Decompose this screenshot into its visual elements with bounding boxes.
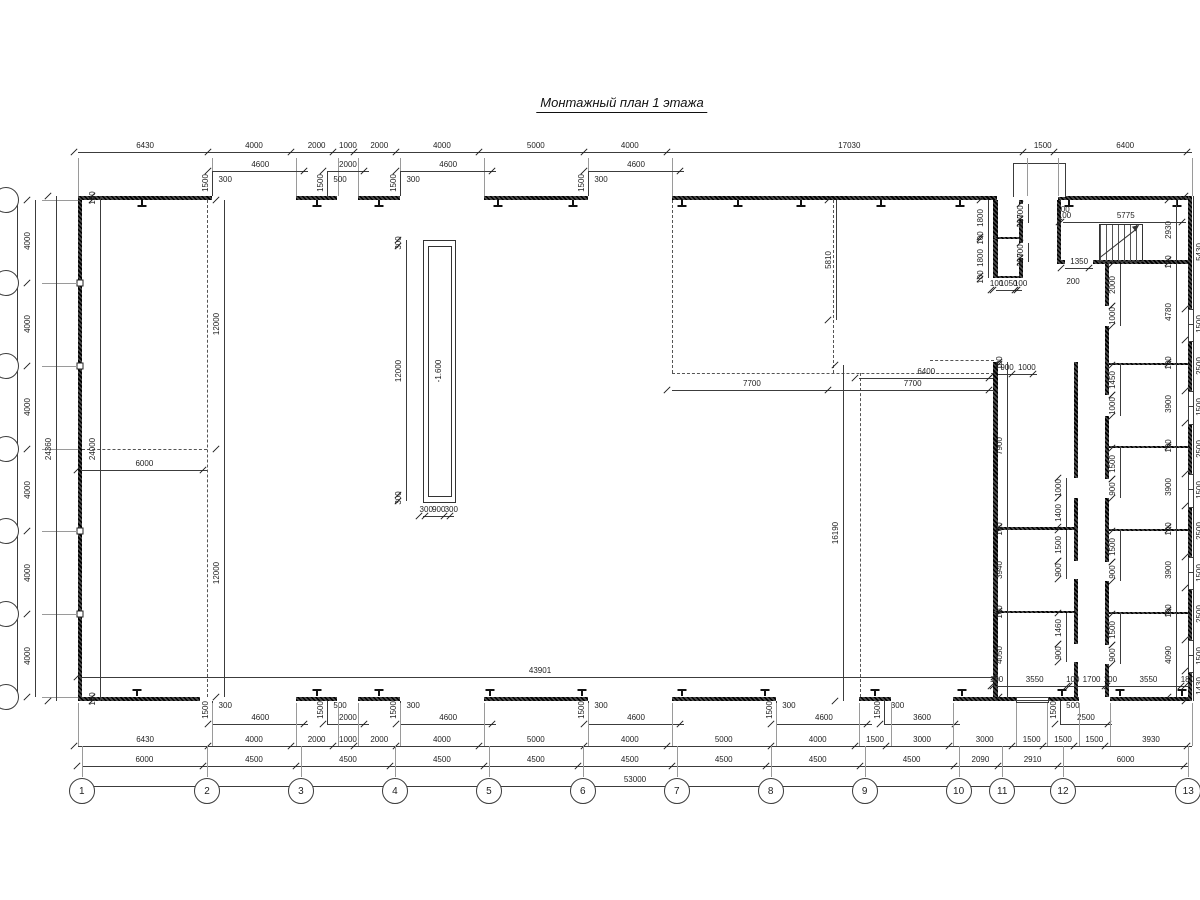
column-symbol <box>375 689 384 691</box>
dimension-label: 300 <box>594 702 607 710</box>
dimension-label: 100 <box>1014 280 1027 288</box>
dimension-label: 200 <box>1017 214 1025 227</box>
dimension-tick <box>876 720 883 727</box>
drawing-element <box>1028 204 1029 223</box>
drawing-element <box>588 724 684 725</box>
dimension-label: 2000 <box>339 714 357 722</box>
drawing-element <box>1120 395 1121 416</box>
drawing-element <box>1110 703 1111 746</box>
drawing-element <box>1192 703 1193 746</box>
drawing-element <box>400 703 401 746</box>
drawing-element <box>358 158 359 196</box>
dimension-label: 4000 <box>24 647 32 665</box>
dimension-label: 4500 <box>903 756 921 764</box>
dimension-tick <box>831 697 838 704</box>
drawing-element <box>988 200 989 279</box>
wall-segment <box>484 697 588 701</box>
dimension-label: 100 <box>1104 676 1117 684</box>
wall-segment <box>1188 340 1192 392</box>
floor-plan-drawing: Монтажный план 1 этажа -1.60064304000200… <box>0 0 1200 900</box>
dimension-label: 12000 <box>213 562 221 584</box>
drawing-element <box>884 701 885 724</box>
drawing-element <box>224 200 225 698</box>
dimension-label: 5775 <box>1117 212 1135 220</box>
dimension-label: 4000 <box>433 142 451 150</box>
drawing-element <box>836 200 837 320</box>
column-symbol <box>375 205 384 207</box>
drawing-element <box>358 703 359 746</box>
drawing-element <box>672 158 673 196</box>
dimension-tick <box>212 694 219 701</box>
drawing-element <box>1120 448 1121 479</box>
drawing-element <box>395 746 396 777</box>
dimension-label: 300 <box>219 702 232 710</box>
drawing-element <box>1120 562 1121 581</box>
dimension-tick <box>1181 336 1188 343</box>
dimension-label: 4780 <box>1165 303 1173 321</box>
dimension-label: 2910 <box>1024 756 1042 764</box>
dimension-label: 4500 <box>433 756 451 764</box>
drawing-element <box>296 703 297 746</box>
wall-segment <box>1074 579 1078 643</box>
column-symbol <box>1116 689 1125 691</box>
dimension-label: 300 <box>445 506 458 514</box>
dashed-line <box>207 200 208 697</box>
dimension-label: 300 <box>395 491 403 504</box>
dimension-label: 300 <box>594 176 607 184</box>
dimension-label: 2000 <box>1109 276 1117 294</box>
dimension-label: 1500 <box>1196 647 1200 665</box>
dimension-label: 180 <box>89 191 97 204</box>
dimension-tick <box>392 720 399 727</box>
dimension-label: 4500 <box>715 756 733 764</box>
drawing-element <box>400 724 496 725</box>
dimension-label: 1500 <box>1109 538 1117 556</box>
dimension-label: 6000 <box>135 460 153 468</box>
drawing-element <box>588 171 589 196</box>
dimension-label: 4600 <box>439 161 457 169</box>
dimension-label: 4000 <box>245 142 263 150</box>
dimension-label: 200 <box>1066 278 1079 286</box>
drawing-element <box>400 171 401 196</box>
dimension-label: 900 <box>1055 563 1063 576</box>
dimension-tick <box>23 445 30 452</box>
wall-segment <box>1188 423 1192 475</box>
dimension-tick <box>768 720 775 727</box>
grid-axis-bubble: 1 <box>69 778 95 804</box>
dimension-tick <box>23 611 30 618</box>
column-symbol <box>956 205 965 207</box>
drawing-element <box>1066 644 1067 663</box>
dimension-label: 1500 <box>1109 621 1117 639</box>
dimension-label: 5810 <box>825 251 833 269</box>
dimension-label: 4000 <box>24 315 32 333</box>
dimension-tick <box>44 192 51 199</box>
drawing-element <box>1047 703 1048 746</box>
dimension-label: 4600 <box>815 714 833 722</box>
dimension-label: 2500 <box>1077 714 1095 722</box>
wall-segment <box>1074 362 1078 478</box>
dimension-label: 1430 <box>1196 677 1200 695</box>
dimension-label: 3600 <box>913 714 931 722</box>
dimension-label: 7700 <box>904 380 922 388</box>
column-symbol <box>761 689 770 691</box>
dimension-label: 2500 <box>1196 357 1200 375</box>
drawing-element <box>1066 561 1067 580</box>
dimension-label: 4000 <box>24 232 32 250</box>
dimension-label: 4050 <box>996 646 1004 664</box>
dimension-label: 100 <box>1056 206 1069 214</box>
dimension-tick <box>580 720 587 727</box>
dimension-label: 1700 <box>1083 676 1101 684</box>
drawing-element <box>1066 530 1067 561</box>
dimension-label: 1460 <box>1055 620 1063 638</box>
column-symbol <box>677 689 686 691</box>
wall-segment <box>1110 697 1192 701</box>
drawing-element <box>82 786 1188 787</box>
dimension-label: 12000 <box>213 313 221 335</box>
dimension-label: 6400 <box>917 368 935 376</box>
drawing-element <box>82 470 207 471</box>
dimension-label: 4500 <box>339 756 357 764</box>
dimension-tick <box>1181 502 1188 509</box>
column-symbol <box>1173 205 1182 207</box>
drawing-element <box>1188 746 1189 777</box>
drawing-element <box>583 746 584 777</box>
dimension-label: 500 <box>333 702 346 710</box>
dimension-label: 1500 <box>866 736 884 744</box>
dimension-label: 900 <box>1109 648 1117 661</box>
dimension-label: 100 <box>996 606 1004 619</box>
dimension-label: 100 <box>977 231 985 244</box>
dimension-label: 12000 <box>395 359 403 381</box>
dashed-line <box>833 200 834 373</box>
dimension-label: 100 <box>1066 676 1079 684</box>
drawing-element <box>42 697 78 698</box>
dimension-label: 5000 <box>527 736 545 744</box>
pit-elevation-label: -1.600 <box>435 359 443 382</box>
dimension-tick <box>74 762 81 769</box>
drawing-element <box>891 703 892 746</box>
dimension-label: 900 <box>1109 482 1117 495</box>
drawing-element <box>884 724 959 725</box>
dimension-label: 2500 <box>1196 605 1200 623</box>
dimension-label: 100 <box>1165 522 1173 535</box>
dimension-label: 4000 <box>621 142 639 150</box>
dimension-tick <box>204 720 211 727</box>
grid-axis-bubble: 8 <box>758 778 784 804</box>
dimension-label: 17030 <box>838 142 860 150</box>
drawing-element <box>327 171 328 196</box>
dimension-label: 100 <box>1165 356 1173 369</box>
dimension-label: 500 <box>333 176 346 184</box>
dimension-label: 2500 <box>1196 440 1200 458</box>
wall-segment <box>953 697 1016 701</box>
dimension-tick <box>23 279 30 286</box>
dimension-label: 4000 <box>621 736 639 744</box>
dimension-label: 2000 <box>370 736 388 744</box>
dimension-label: 1500 <box>1054 736 1072 744</box>
column-symbol <box>797 205 806 207</box>
dimension-label: 6000 <box>1117 756 1135 764</box>
dimension-label: 300 <box>782 702 795 710</box>
dimension-label: 3900 <box>1165 561 1173 579</box>
drawing-element <box>1120 479 1121 498</box>
drawing-element <box>484 703 485 746</box>
drawing-element <box>959 746 960 777</box>
drawing-element <box>400 171 496 172</box>
dimension-label: 4000 <box>433 736 451 744</box>
drawing-element <box>78 703 79 746</box>
dimension-tick <box>23 196 30 203</box>
dimension-label: 1800 <box>977 249 985 267</box>
drawing-element <box>1007 362 1008 698</box>
column-symbol <box>312 205 321 207</box>
dimension-label: 3900 <box>1165 395 1173 413</box>
dimension-label: 1500 <box>317 701 325 719</box>
dashed-line <box>672 373 994 374</box>
drawing-element <box>843 365 844 701</box>
dimension-label: 4500 <box>245 756 263 764</box>
dimension-label: 2090 <box>972 756 990 764</box>
dimension-label: 1500 <box>1196 315 1200 333</box>
dimension-label: 7700 <box>743 380 761 388</box>
dimension-tick <box>212 445 219 452</box>
dimension-tick <box>212 196 219 203</box>
dimension-label: 1000 <box>1018 364 1036 372</box>
dimension-tick <box>1181 419 1188 426</box>
dashed-line <box>930 360 994 361</box>
dimension-label: 1000 <box>339 736 357 744</box>
drawing-element <box>489 746 490 777</box>
dimension-label: 53000 <box>624 776 646 784</box>
dimension-tick <box>1052 720 1059 727</box>
dimension-label: 43901 <box>529 667 551 675</box>
drawing-element <box>35 200 36 698</box>
drawing-element <box>327 701 328 724</box>
dimension-label: 300 <box>219 176 232 184</box>
drawing-element <box>82 677 999 678</box>
dimension-tick <box>1181 388 1188 395</box>
drawing-element <box>1016 703 1017 746</box>
dimension-label: 100 <box>977 271 985 284</box>
dimension-label: 4500 <box>809 756 827 764</box>
dimension-tick <box>319 720 326 727</box>
dimension-label: 6430 <box>136 736 154 744</box>
drawing-element <box>1120 614 1121 645</box>
grid-axis-bubble: 4 <box>382 778 408 804</box>
wall-segment <box>1058 196 1192 200</box>
dimension-label: 300 <box>420 506 433 514</box>
column-symbol <box>871 689 880 691</box>
grid-axis-bubble: 6 <box>570 778 596 804</box>
drawing-element <box>1063 222 1186 223</box>
drawing-element <box>56 196 57 701</box>
dimension-label: 3000 <box>976 736 994 744</box>
grid-axis-bubble: 5 <box>476 778 502 804</box>
drawing-element <box>776 724 872 725</box>
dimension-label: 2930 <box>1165 221 1173 239</box>
dimension-label: 4000 <box>24 481 32 499</box>
drawing-element <box>484 158 485 196</box>
dimension-label: 4000 <box>24 398 32 416</box>
dimension-label: 900 <box>1109 565 1117 578</box>
column-symbol <box>485 689 494 691</box>
dimension-label: 4000 <box>809 736 827 744</box>
dimension-label: 1500 <box>874 701 882 719</box>
drawing-element <box>1002 746 1003 777</box>
wall-segment <box>672 697 776 701</box>
dimension-label: 1500 <box>317 174 325 192</box>
drawing-element <box>42 283 78 284</box>
drawing-element <box>859 703 860 746</box>
dimension-label: 3900 <box>1165 478 1173 496</box>
dimension-label: 16190 <box>832 522 840 544</box>
drawing-element <box>1120 645 1121 664</box>
drawing-element <box>1027 158 1028 196</box>
dimension-label: 1000 <box>1109 307 1117 325</box>
grid-axis-bubble: 12 <box>1050 778 1076 804</box>
dimension-label: 6000 <box>135 756 153 764</box>
dimension-tick <box>1181 305 1188 312</box>
dimension-label: 5000 <box>715 736 733 744</box>
drawing-element <box>82 766 1188 767</box>
column-symbol <box>312 689 321 691</box>
dimension-label: 6430 <box>136 142 154 150</box>
grid-axis-bubble: 2 <box>194 778 220 804</box>
dimension-label: 1800 <box>977 209 985 227</box>
drawing-element <box>1120 306 1121 327</box>
dimension-tick <box>824 317 831 324</box>
drawing-element <box>78 152 1192 153</box>
grid-axis-bubble: 10 <box>946 778 972 804</box>
drawing-element <box>672 703 673 746</box>
grid-axis-bubble: 13 <box>1175 778 1200 804</box>
dimension-label: 100 <box>1165 605 1173 618</box>
dimension-label: 4500 <box>621 756 639 764</box>
drawing-element <box>953 703 954 746</box>
dimension-tick <box>1181 585 1188 592</box>
dimension-label: 2000 <box>339 161 357 169</box>
wall-segment <box>1188 196 1192 309</box>
grid-axis-bubble: 7 <box>664 778 690 804</box>
dimension-label: 3930 <box>1142 736 1160 744</box>
dimension-label: 3550 <box>1140 676 1158 684</box>
drawing-element <box>1060 724 1112 725</box>
drawing-element <box>42 531 78 532</box>
dimension-tick <box>1181 668 1188 675</box>
dimension-label: 2500 <box>1196 523 1200 541</box>
grid-row-bubble <box>0 684 19 710</box>
dimension-label: 2000 <box>308 142 326 150</box>
dashed-line <box>860 373 861 697</box>
drawing-element <box>1079 703 1080 746</box>
wall-segment <box>78 196 212 200</box>
column-symbol <box>733 205 742 207</box>
dimension-label: 5430 <box>1196 243 1200 261</box>
dimension-tick <box>1181 554 1188 561</box>
dimension-label: 1500 <box>578 174 586 192</box>
drawing-element <box>1176 200 1177 698</box>
dimension-tick <box>1057 264 1064 271</box>
drawing-element <box>42 200 78 201</box>
grid-axis-bubble: 9 <box>852 778 878 804</box>
drawing-element <box>1120 264 1121 305</box>
drawing-element <box>296 158 297 196</box>
column-symbol <box>877 205 886 207</box>
dimension-label: 1500 <box>1050 701 1058 719</box>
drawing-element <box>212 171 213 196</box>
column-symbol <box>132 689 141 691</box>
dimension-label: 3940 <box>996 561 1004 579</box>
drawing-element <box>672 390 994 391</box>
drawing-element <box>1120 531 1121 562</box>
dimension-tick <box>1054 576 1061 583</box>
drawing-element <box>207 746 208 777</box>
drawing-element <box>996 290 1022 291</box>
dimension-label: 1500 <box>202 174 210 192</box>
dimension-label: 300 <box>406 702 419 710</box>
dimension-label: 100 <box>996 522 1004 535</box>
drawing-element <box>865 746 866 777</box>
dimension-label: 1500 <box>202 701 210 719</box>
dimension-label: 1000 <box>339 142 357 150</box>
drawing-element <box>588 703 589 746</box>
dimension-label: 4000 <box>245 736 263 744</box>
column-symbol <box>577 689 586 691</box>
dimension-label: 300 <box>395 236 403 249</box>
drawing-element <box>406 240 407 501</box>
dashed-line <box>672 200 673 373</box>
dimension-label: 1500 <box>390 174 398 192</box>
drawing-element <box>78 158 79 196</box>
dimension-label: 1500 <box>1023 736 1041 744</box>
dimension-tick <box>1181 471 1188 478</box>
dimension-label: 1000 <box>1055 479 1063 497</box>
grid-axis-bubble: 11 <box>989 778 1015 804</box>
wall-segment <box>1188 588 1192 640</box>
dimension-label: 7900 <box>996 437 1004 455</box>
dimension-label: 5000 <box>527 142 545 150</box>
dimension-label: 180 <box>1181 676 1194 684</box>
drawing-element <box>301 746 302 777</box>
wall-segment <box>672 196 998 200</box>
dimension-label: 4090 <box>1165 646 1173 664</box>
dimension-label: 1500 <box>1196 398 1200 416</box>
dimension-label: 180 <box>89 692 97 705</box>
dimension-tick <box>23 362 30 369</box>
drawing-element <box>771 746 772 777</box>
dimension-label: 100 <box>990 676 1003 684</box>
dimension-tick <box>23 694 30 701</box>
drawing-element <box>677 746 678 777</box>
drawing-element <box>1120 365 1121 395</box>
drawing-element <box>1192 158 1193 196</box>
dimension-label: 100 <box>1165 439 1173 452</box>
dimension-label: 3000 <box>913 736 931 744</box>
dimension-tick <box>1054 659 1061 666</box>
dimension-tick <box>23 528 30 535</box>
dimension-label: 1500 <box>1196 564 1200 582</box>
dimension-label: 1400 <box>1055 504 1063 522</box>
drawing-element <box>1060 701 1061 724</box>
dimension-label: 300 <box>891 702 904 710</box>
drawing-element <box>100 196 101 701</box>
dimension-label: 1500 <box>1109 455 1117 473</box>
dimension-label: 1500 <box>390 701 398 719</box>
dimension-label: 6400 <box>1116 142 1134 150</box>
drawing-element <box>212 724 308 725</box>
